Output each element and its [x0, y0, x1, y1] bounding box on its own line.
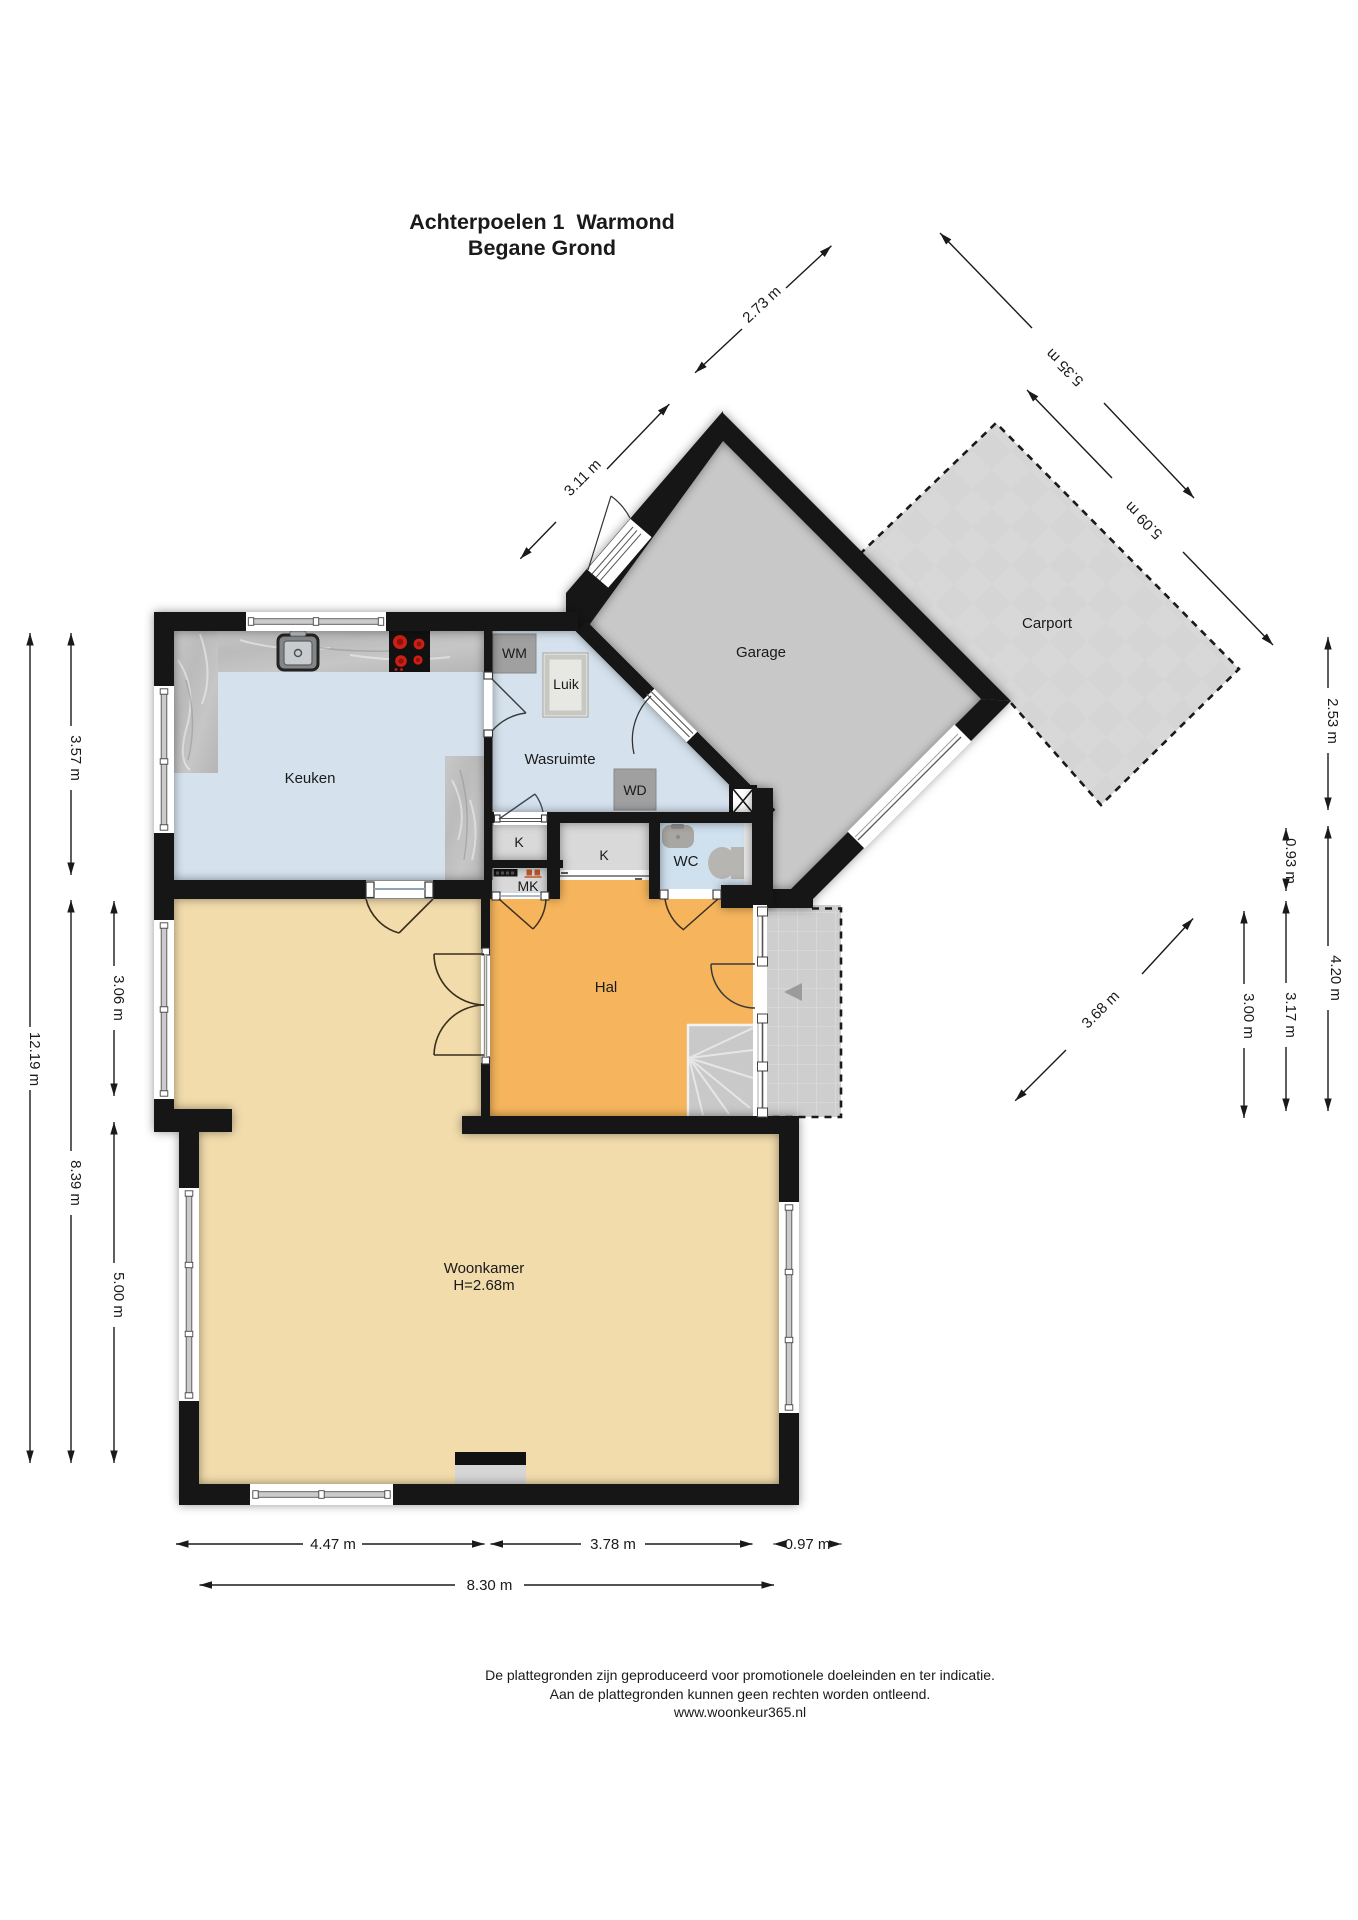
- svg-text:Woonkamer: Woonkamer: [444, 1260, 525, 1277]
- svg-text:Wasruimte: Wasruimte: [524, 751, 595, 768]
- svg-text:5.00 m: 5.00 m: [110, 1272, 127, 1318]
- svg-text:www.woonkeur365.nl: www.woonkeur365.nl: [673, 1704, 806, 1720]
- svg-text:Begane Grond: Begane Grond: [468, 236, 616, 260]
- svg-text:De plattegronden zijn geproduc: De plattegronden zijn geproduceerd voor …: [485, 1667, 995, 1683]
- svg-text:Luik: Luik: [553, 676, 580, 692]
- svg-text:Keuken: Keuken: [285, 770, 336, 787]
- svg-text:Garage: Garage: [736, 644, 786, 661]
- svg-text:3.57 m: 3.57 m: [67, 735, 84, 781]
- svg-text:H=2.68m: H=2.68m: [453, 1277, 514, 1294]
- svg-text:3.78 m: 3.78 m: [590, 1536, 636, 1553]
- svg-text:2.53 m: 2.53 m: [1324, 698, 1341, 744]
- svg-text:3.17 m: 3.17 m: [1282, 992, 1299, 1038]
- svg-text:WM: WM: [502, 645, 527, 661]
- svg-text:4.20 m: 4.20 m: [1327, 955, 1344, 1001]
- svg-text:12.19 m: 12.19 m: [26, 1032, 43, 1086]
- svg-text:Achterpoelen 1 Warmond: Achterpoelen 1 Warmond: [409, 210, 675, 234]
- svg-text:4.47 m: 4.47 m: [310, 1536, 356, 1553]
- svg-text:K: K: [599, 847, 609, 863]
- svg-text:WD: WD: [623, 782, 646, 798]
- svg-text:8.39 m: 8.39 m: [67, 1160, 84, 1206]
- svg-text:K: K: [514, 834, 524, 850]
- svg-text:Hal: Hal: [595, 979, 618, 996]
- svg-text:3.00 m: 3.00 m: [1240, 993, 1257, 1039]
- svg-text:Aan de plattegronden kunnen ge: Aan de plattegronden kunnen geen rechten…: [550, 1686, 931, 1702]
- svg-text:0.97 m: 0.97 m: [785, 1536, 831, 1553]
- svg-text:MK: MK: [518, 878, 540, 894]
- svg-text:8.30 m: 8.30 m: [467, 1577, 513, 1594]
- svg-text:3.06 m: 3.06 m: [110, 975, 127, 1021]
- svg-text:0.93 m: 0.93 m: [1282, 838, 1299, 884]
- svg-text:WC: WC: [674, 853, 699, 870]
- svg-text:Carport: Carport: [1022, 615, 1073, 632]
